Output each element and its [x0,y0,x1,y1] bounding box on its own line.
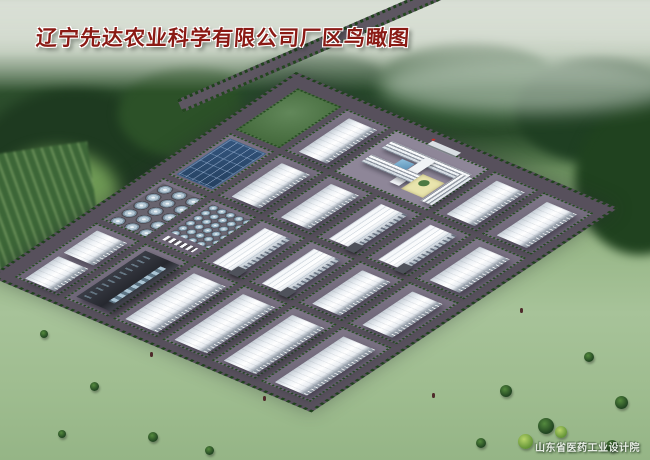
tree [500,385,512,397]
title-text: 辽宁先达农业科学有限公司厂区鸟瞰图 [35,22,411,52]
credit-text: 山东省医药工业设计院 [535,439,640,454]
bush [40,330,48,338]
entrance-gate [426,141,461,157]
bush [90,382,99,391]
tree [518,434,533,449]
pedestrian-figure [432,393,435,398]
tree [615,396,628,409]
pedestrian-figure [263,396,266,401]
pedestrian-figure [520,308,523,313]
aerial-rendering: 辽宁先达农业科学有限公司厂区鸟瞰图 山东省医药工业设计院 [0,0,650,460]
pedestrian-figure [150,352,153,357]
tree [476,438,486,448]
tree [555,426,567,438]
tree [584,352,594,362]
bush [148,432,158,442]
bush [58,430,66,438]
bush [205,446,214,455]
tree [538,418,554,434]
